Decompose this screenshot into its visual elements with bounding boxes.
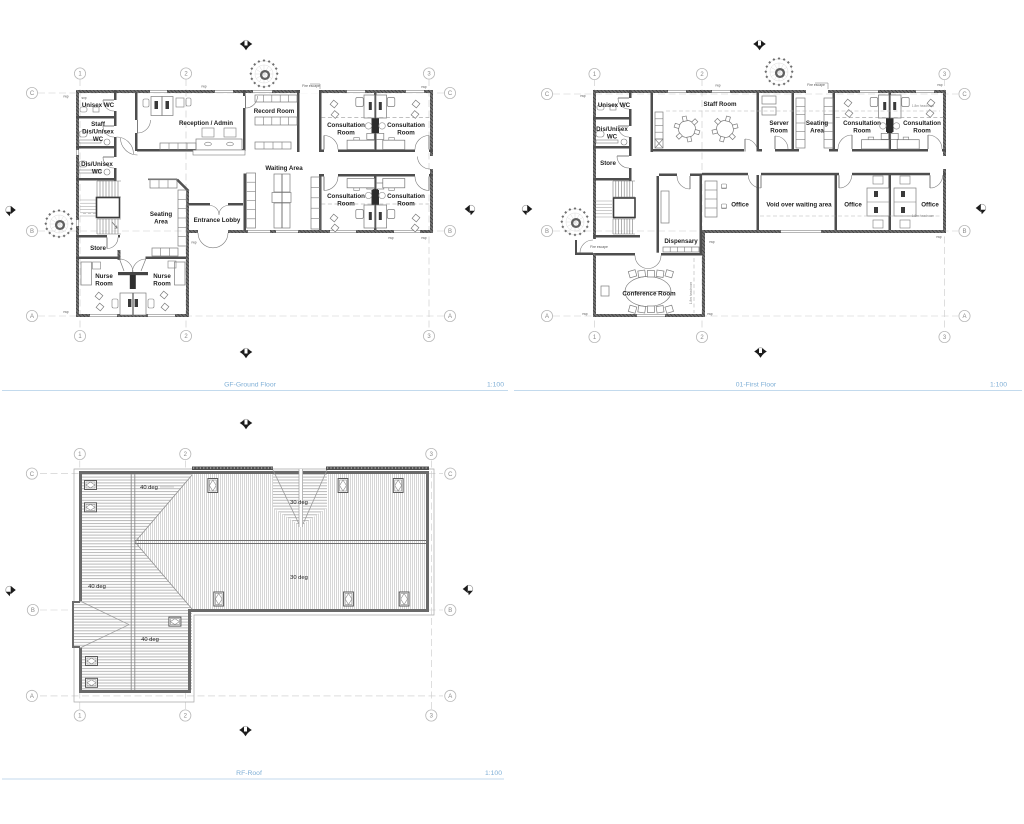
svg-text:1:100: 1:100 bbox=[990, 382, 1007, 389]
svg-text:Consultation: Consultation bbox=[843, 120, 881, 127]
svg-text:30 deg: 30 deg bbox=[290, 500, 308, 506]
svg-text:Staff Room: Staff Room bbox=[704, 101, 737, 108]
svg-text:Office: Office bbox=[731, 202, 749, 209]
svg-text:A: A bbox=[448, 694, 452, 700]
svg-text:Room: Room bbox=[397, 130, 415, 137]
svg-text:rwp: rwp bbox=[707, 312, 712, 316]
svg-text:30 deg: 30 deg bbox=[290, 575, 308, 581]
svg-text:Area: Area bbox=[154, 219, 168, 226]
svg-text:Staff: Staff bbox=[91, 121, 106, 128]
svg-text:Consultation: Consultation bbox=[327, 193, 365, 200]
svg-text:Dis/Unisex: Dis/Unisex bbox=[596, 126, 628, 133]
svg-text:WC: WC bbox=[607, 134, 618, 141]
svg-text:Room: Room bbox=[337, 130, 355, 137]
svg-text:rwp: rwp bbox=[582, 312, 587, 316]
svg-text:Consultation: Consultation bbox=[327, 122, 365, 129]
svg-text:RF-Roof: RF-Roof bbox=[236, 770, 262, 777]
svg-text:Seating: Seating bbox=[806, 120, 829, 127]
svg-text:B: B bbox=[545, 229, 549, 235]
svg-text:A: A bbox=[30, 314, 34, 320]
svg-text:A: A bbox=[448, 314, 452, 320]
svg-text:Fire escape: Fire escape bbox=[807, 83, 825, 87]
svg-text:Room: Room bbox=[397, 201, 415, 208]
svg-text:1.8m headroom: 1.8m headroom bbox=[912, 214, 935, 218]
svg-text:Unisex WC: Unisex WC bbox=[82, 102, 115, 109]
svg-text:A: A bbox=[962, 314, 966, 320]
svg-text:Dis/Unisex: Dis/Unisex bbox=[82, 129, 114, 136]
svg-text:Waiting Area: Waiting Area bbox=[265, 165, 303, 172]
svg-text:Dispensary: Dispensary bbox=[664, 238, 698, 245]
svg-text:C: C bbox=[30, 91, 35, 97]
svg-text:Consultation: Consultation bbox=[903, 120, 941, 127]
svg-text:B: B bbox=[962, 229, 966, 235]
svg-text:rwp: rwp bbox=[715, 84, 720, 88]
svg-text:Room: Room bbox=[770, 128, 788, 135]
svg-text:1:100: 1:100 bbox=[487, 382, 504, 389]
svg-text:B: B bbox=[448, 608, 452, 614]
svg-text:Fire escape: Fire escape bbox=[590, 245, 608, 249]
svg-text:svp: svp bbox=[82, 96, 87, 100]
svg-text:40 deg: 40 deg bbox=[88, 584, 106, 590]
svg-text:rwp: rwp bbox=[937, 83, 942, 87]
svg-text:Entrance Lobby: Entrance Lobby bbox=[194, 217, 241, 224]
svg-text:C: C bbox=[448, 472, 453, 478]
svg-text:A: A bbox=[545, 314, 549, 320]
svg-text:Area: Area bbox=[810, 128, 824, 135]
svg-text:Nurse: Nurse bbox=[95, 273, 113, 280]
svg-text:Record Room: Record Room bbox=[254, 108, 295, 115]
svg-text:Room: Room bbox=[853, 128, 871, 135]
svg-text:Fire escape: Fire escape bbox=[302, 84, 320, 88]
svg-text:WC: WC bbox=[93, 136, 104, 143]
svg-text:B: B bbox=[30, 229, 34, 235]
svg-text:Reception / Admin: Reception / Admin bbox=[179, 120, 233, 127]
svg-text:40 deg: 40 deg bbox=[140, 485, 158, 491]
svg-text:Server: Server bbox=[769, 120, 789, 127]
svg-text:1.8m headroom: 1.8m headroom bbox=[689, 281, 693, 304]
svg-text:01-First Floor: 01-First Floor bbox=[736, 382, 777, 389]
svg-text:C: C bbox=[448, 91, 453, 97]
svg-text:rwp: rwp bbox=[191, 241, 196, 245]
svg-text:B: B bbox=[448, 229, 452, 235]
svg-text:40 deg: 40 deg bbox=[141, 637, 159, 643]
svg-text:Room: Room bbox=[337, 201, 355, 208]
svg-text:WC: WC bbox=[92, 169, 103, 176]
svg-text:rwp: rwp bbox=[201, 85, 206, 89]
svg-text:Unisex WC: Unisex WC bbox=[598, 102, 631, 109]
svg-text:rwp: rwp bbox=[936, 235, 941, 239]
svg-text:Office: Office bbox=[844, 202, 862, 209]
svg-text:Conference Room: Conference Room bbox=[622, 291, 676, 298]
svg-text:Store: Store bbox=[600, 160, 616, 167]
svg-text:1.8m headroom: 1.8m headroom bbox=[912, 104, 935, 108]
svg-text:Room: Room bbox=[153, 281, 171, 288]
svg-text:Office: Office bbox=[921, 202, 939, 209]
svg-text:Nurse: Nurse bbox=[153, 273, 171, 280]
svg-text:rwp: rwp bbox=[421, 236, 426, 240]
svg-text:A: A bbox=[30, 694, 34, 700]
svg-text:Seating: Seating bbox=[150, 211, 173, 218]
svg-text:1:100: 1:100 bbox=[485, 770, 502, 777]
svg-text:Store: Store bbox=[90, 245, 106, 252]
svg-text:Consultation: Consultation bbox=[387, 193, 425, 200]
svg-text:C: C bbox=[545, 92, 550, 98]
svg-text:Room: Room bbox=[913, 128, 931, 135]
svg-text:Consultation: Consultation bbox=[387, 122, 425, 129]
svg-text:rwp: rwp bbox=[421, 85, 426, 89]
svg-text:C: C bbox=[30, 472, 35, 478]
svg-text:Void over waiting area: Void over waiting area bbox=[766, 202, 832, 209]
svg-text:C: C bbox=[962, 92, 967, 98]
svg-text:Dis/Unisex: Dis/Unisex bbox=[81, 161, 113, 168]
svg-text:Room: Room bbox=[95, 281, 113, 288]
svg-text:B: B bbox=[31, 608, 35, 614]
svg-text:rwp: rwp bbox=[388, 236, 393, 240]
svg-text:rwp: rwp bbox=[63, 95, 68, 99]
svg-text:GF-Ground Floor: GF-Ground Floor bbox=[224, 382, 276, 389]
svg-text:rwp: rwp bbox=[63, 310, 68, 314]
svg-text:rwp: rwp bbox=[580, 94, 585, 98]
svg-text:rwp: rwp bbox=[709, 240, 714, 244]
